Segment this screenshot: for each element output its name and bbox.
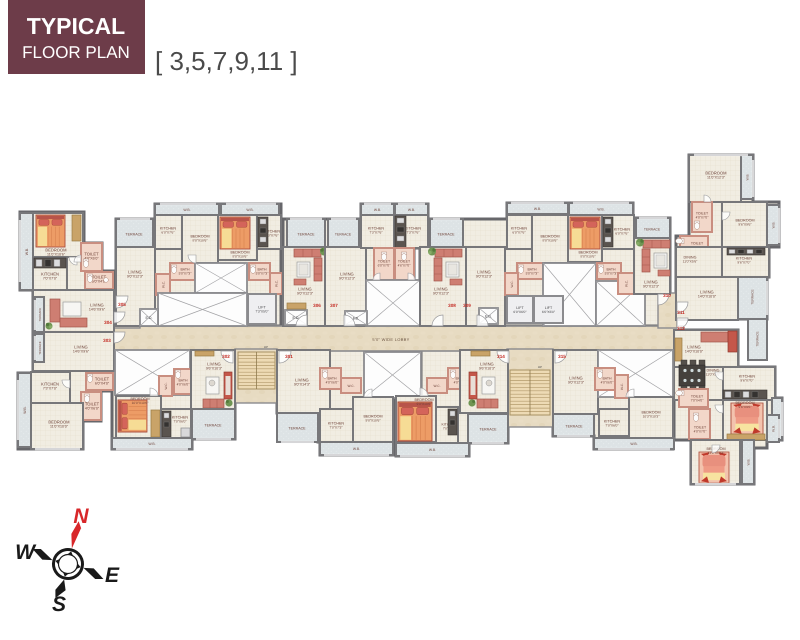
svg-text:4'0"X6'0": 4'0"X6'0" (601, 381, 614, 385)
svg-text:UP: UP (538, 365, 542, 369)
svg-text:W.B.: W.B. (534, 207, 541, 211)
svg-text:6'0"X7'6": 6'0"X7'6" (615, 232, 629, 236)
svg-text:9'0"X12'3": 9'0"X12'3" (297, 292, 314, 296)
svg-text:TERRACE: TERRACE (38, 341, 42, 354)
svg-text:14'0"X10'0": 14'0"X10'0" (685, 350, 704, 354)
svg-text:9'6"X9'6": 9'6"X9'6" (738, 405, 752, 409)
svg-text:UP: UP (264, 345, 268, 349)
svg-text:W.B.: W.B. (408, 208, 415, 212)
svg-text:9'6"X7'0": 9'6"X7'0" (740, 379, 754, 383)
svg-text:7'3"X5'0": 7'3"X5'0" (255, 309, 269, 313)
svg-text:9'0"X12'3": 9'0"X12'3" (568, 381, 585, 385)
svg-text:W.B.: W.B. (745, 174, 749, 181)
svg-text:F.D.: F.D. (353, 316, 359, 320)
svg-text:5'0"X7'3": 5'0"X7'3" (179, 272, 192, 276)
svg-text:W.B.: W.B. (429, 448, 436, 452)
svg-text:7'0"X4'0": 7'0"X4'0" (691, 399, 704, 403)
svg-text:4'0"X7'0": 4'0"X7'0" (696, 216, 709, 220)
svg-text:9'6"X9'6": 9'6"X9'6" (738, 223, 752, 227)
svg-text:14'6"X9'6": 14'6"X9'6" (89, 308, 106, 312)
svg-text:8'0"X10'6": 8'0"X10'6" (543, 239, 559, 243)
svg-text:8'0"X10'6": 8'0"X10'6" (193, 239, 209, 243)
svg-text:302: 302 (222, 354, 230, 359)
svg-text:E: E (105, 564, 120, 587)
svg-text:W.C.: W.C. (348, 384, 355, 388)
svg-text:TERRACE: TERRACE (644, 227, 661, 231)
svg-text:6'0"X7'0": 6'0"X7'0" (378, 264, 391, 268)
svg-text:E.D.: E.D. (485, 314, 492, 318)
svg-text:TERRACE: TERRACE (125, 232, 143, 236)
svg-text:W.C.: W.C. (274, 280, 278, 287)
svg-text:[ 3,5,7,9,11 ]: [ 3,5,7,9,11 ] (155, 46, 298, 76)
svg-text:307: 307 (330, 303, 338, 308)
svg-text:309: 309 (463, 303, 471, 308)
svg-text:312: 312 (677, 326, 685, 331)
svg-text:9'6"X7'0": 9'6"X7'0" (737, 261, 751, 265)
svg-text:305: 305 (118, 302, 126, 307)
svg-text:7'3"X7'6": 7'3"X7'6" (406, 231, 420, 235)
svg-text:6'0"X6'0": 6'0"X6'0" (542, 310, 556, 314)
svg-text:11'0"X5'6": 11'0"X5'6" (683, 260, 699, 264)
svg-text:TERRACE: TERRACE (288, 426, 306, 430)
svg-text:W.B.: W.B. (25, 248, 29, 256)
svg-text:W.B.: W.B. (246, 208, 253, 212)
svg-text:W.B.: W.B. (23, 406, 27, 414)
svg-text:W.B.: W.B. (353, 447, 360, 451)
svg-text:5'0"X7'3": 5'0"X7'3" (605, 272, 618, 276)
svg-text:TERRACE: TERRACE (335, 232, 352, 236)
svg-text:14'0"X10'0": 14'0"X10'0" (698, 295, 717, 299)
svg-text:6'0"X6'0": 6'0"X6'0" (513, 310, 527, 314)
svg-text:5'0"X7'3": 5'0"X7'3" (256, 272, 269, 276)
svg-text:9'0"X12'3": 9'0"X12'3" (339, 277, 356, 281)
svg-text:9'0"X12'3": 9'0"X12'3" (476, 275, 493, 279)
svg-text:TERRACE: TERRACE (297, 232, 315, 236)
svg-text:9'0"X14'3": 9'0"X14'3" (294, 383, 311, 387)
svg-text:9'0"X12'3": 9'0"X12'3" (433, 292, 450, 296)
svg-text:9'6"X10'3": 9'6"X10'3" (206, 367, 223, 371)
svg-text:315: 315 (558, 354, 566, 359)
svg-text:306: 306 (313, 303, 321, 308)
svg-text:10'0"X10'6": 10'0"X10'6" (132, 401, 150, 405)
svg-text:W: W (15, 541, 37, 564)
svg-text:310: 310 (663, 293, 671, 298)
svg-text:9'0"X10'6": 9'0"X10'6" (417, 402, 433, 406)
svg-text:10'3"X10'3": 10'3"X10'3" (643, 415, 661, 419)
svg-text:FLOOR PLAN: FLOOR PLAN (22, 43, 130, 62)
svg-text:9'0"X10'6": 9'0"X10'6" (366, 419, 382, 423)
svg-text:301: 301 (285, 354, 293, 359)
svg-text:308: 308 (448, 303, 456, 308)
svg-text:9'0"X12'3": 9'0"X12'3" (643, 285, 660, 289)
svg-text:W.B.: W.B. (746, 459, 750, 466)
svg-text:4'0"X6'0": 4'0"X6'0" (326, 381, 339, 385)
svg-text:303: 303 (103, 338, 111, 343)
svg-text:4'0"X6'0": 4'0"X6'0" (85, 407, 100, 411)
svg-text:W.C.: W.C. (510, 280, 514, 287)
svg-text:W.B.: W.B. (630, 442, 637, 446)
svg-text:7'0"X6'0": 7'0"X6'0" (605, 424, 619, 428)
svg-text:4'0"X7'0": 4'0"X7'0" (694, 430, 707, 434)
svg-text:TERRACE: TERRACE (479, 427, 497, 431)
svg-text:W.C.: W.C. (434, 384, 441, 388)
svg-text:TERRACE: TERRACE (437, 232, 455, 236)
svg-text:TERRACE: TERRACE (38, 308, 42, 321)
svg-text:TYPICAL: TYPICAL (27, 13, 125, 39)
svg-text:TERRACE: TERRACE (565, 424, 583, 428)
svg-text:9'6"X10'3": 9'6"X10'3" (479, 367, 496, 371)
svg-text:4'0"X6'0": 4'0"X6'0" (177, 383, 190, 387)
svg-text:7'0"X7'3": 7'0"X7'3" (329, 426, 343, 430)
svg-text:W.B.: W.B. (771, 425, 775, 432)
svg-text:W.B.: W.B. (597, 207, 604, 211)
svg-text:5'0"X7'3": 5'0"X7'3" (526, 272, 539, 276)
svg-text:E.D.: E.D. (146, 316, 153, 320)
svg-text:4'6"X7'0": 4'6"X7'0" (398, 264, 411, 268)
svg-text:14'6"X9'6": 14'6"X9'6" (73, 350, 90, 354)
svg-text:N: N (73, 505, 89, 528)
svg-text:11'0"X12'3": 11'0"X12'3" (707, 176, 726, 180)
svg-text:304: 304 (104, 320, 112, 325)
svg-text:6'0"X7'6": 6'0"X7'6" (512, 231, 526, 235)
svg-text:7'0"X6'0": 7'0"X6'0" (173, 420, 187, 424)
svg-text:S: S (52, 593, 66, 616)
svg-text:W.C.: W.C. (164, 382, 168, 389)
svg-text:7'0"X7'0": 7'0"X7'0" (43, 277, 58, 281)
svg-text:9'0"X12'3": 9'0"X12'3" (127, 275, 144, 279)
svg-text:W.B.: W.B. (183, 208, 190, 212)
svg-text:6'0"X7'6": 6'0"X7'6" (161, 231, 175, 235)
svg-text:8'0"X10'6": 8'0"X10'6" (581, 255, 597, 259)
svg-text:7'3"X7'0": 7'3"X7'0" (43, 387, 58, 391)
svg-text:W.B.: W.B. (771, 222, 775, 229)
svg-text:W.C.: W.C. (624, 280, 628, 287)
svg-text:6'0"X4'0": 6'0"X4'0" (95, 382, 110, 386)
svg-text:W.C.: W.C. (161, 281, 165, 288)
svg-text:11'0"X10'0": 11'0"X10'0" (50, 425, 69, 429)
svg-text:314: 314 (497, 354, 505, 359)
svg-text:8'0"X10'6": 8'0"X10'6" (233, 255, 249, 259)
svg-text:TERRACE: TERRACE (755, 331, 759, 346)
svg-text:W.B.: W.B. (374, 208, 381, 212)
svg-text:TERRACE: TERRACE (750, 289, 754, 304)
svg-text:311: 311 (677, 310, 685, 315)
svg-text:W.C.: W.C. (620, 383, 624, 390)
svg-text:7'3"X7'6": 7'3"X7'6" (369, 231, 383, 235)
svg-text:5'0" WIDE LOBBY: 5'0" WIDE LOBBY (372, 337, 409, 342)
svg-text:TERRACE: TERRACE (204, 423, 222, 427)
svg-text:W.B.: W.B. (148, 442, 155, 446)
